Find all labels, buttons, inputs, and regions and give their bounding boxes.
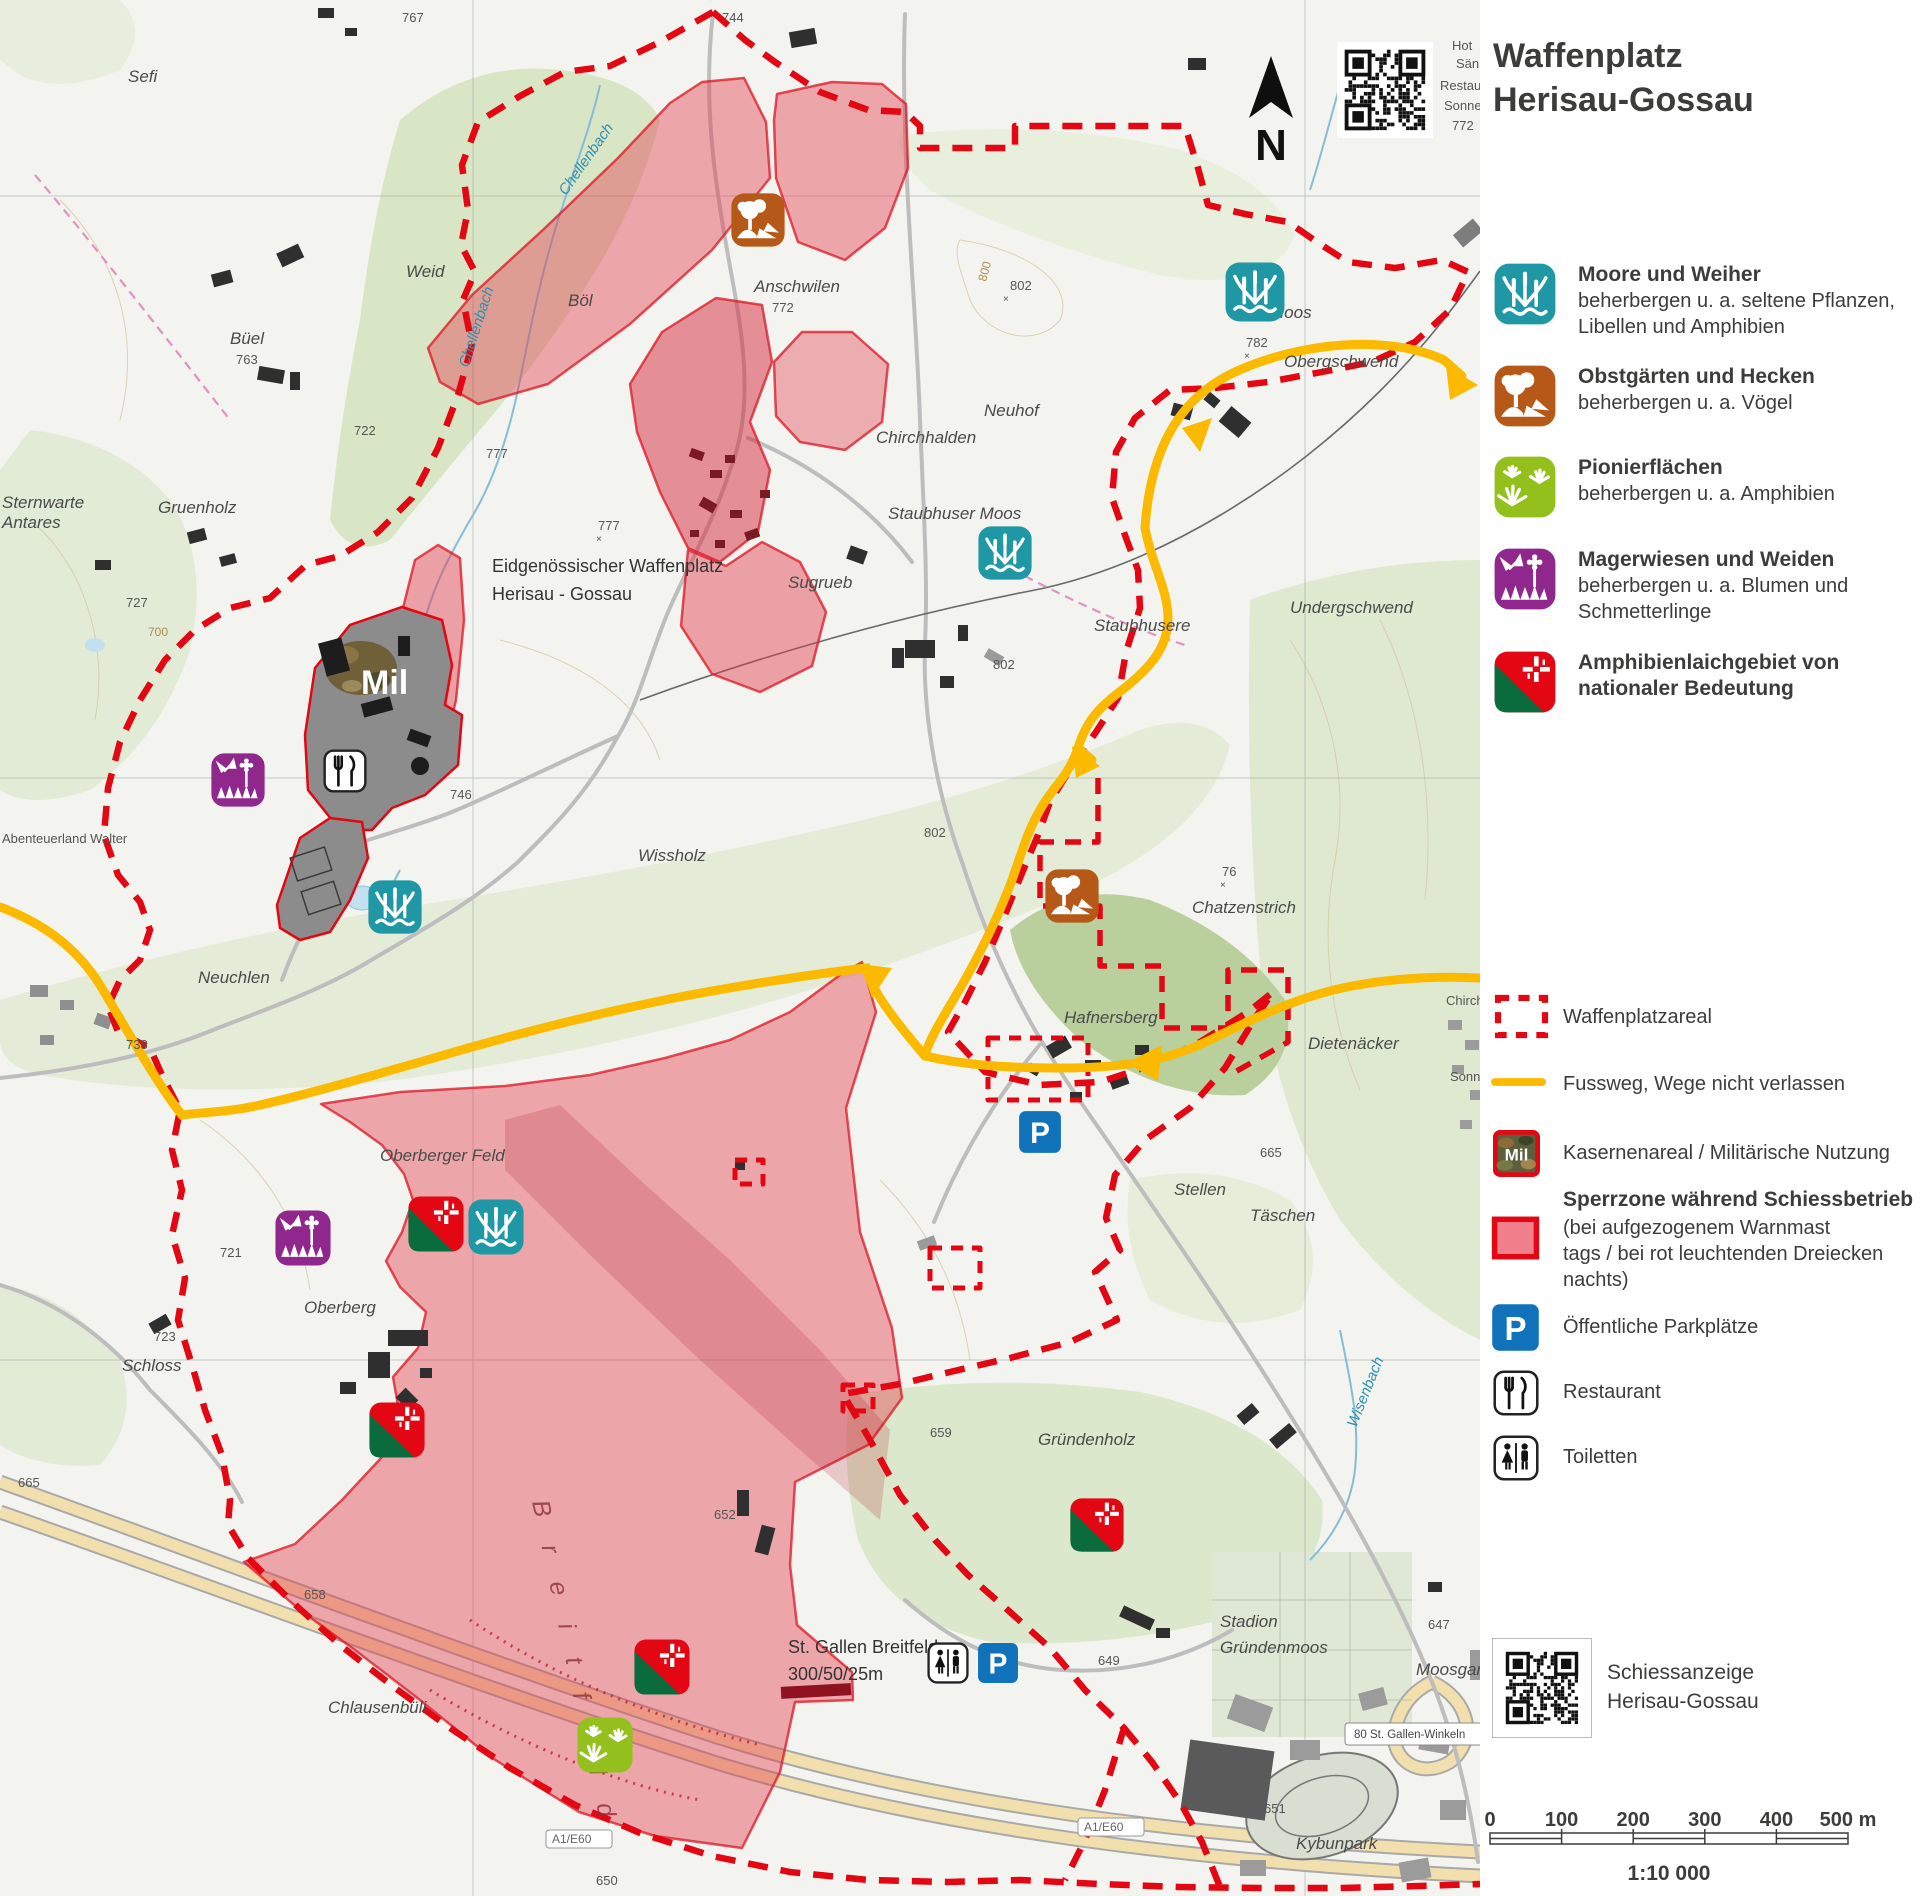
map-label: Abenteuerland Walter xyxy=(2,831,128,846)
map-label: Stellen xyxy=(1174,1180,1226,1199)
map-label: 802 xyxy=(1010,278,1032,293)
svg-text:400: 400 xyxy=(1760,1809,1793,1831)
map-label: Moosgar xyxy=(1416,1660,1480,1679)
map-title: WaffenplatzHerisau-Gossau xyxy=(1493,34,1754,122)
map-label: 665 xyxy=(1260,1145,1282,1160)
map-label: 300/50/25m xyxy=(788,1664,883,1684)
svg-text:200: 200 xyxy=(1617,1809,1650,1831)
map-label: 782 xyxy=(1246,335,1268,350)
map-label: Böl xyxy=(568,291,594,310)
map-label: Anschwilen xyxy=(753,277,840,296)
map-label: Gründenholz xyxy=(1038,1430,1136,1449)
parking-icon: P xyxy=(1019,1111,1061,1153)
map-label: St. Gallen Breitfeld xyxy=(788,1637,938,1657)
map-label: Neuhof xyxy=(984,401,1041,420)
legend-panel: WaffenplatzHerisau-Gossau Moore und Weih… xyxy=(1480,0,1920,1896)
amphibian-area-icon xyxy=(1493,650,1557,714)
map-label: 665 xyxy=(18,1475,40,1490)
map-label: 802 xyxy=(993,657,1015,672)
parking-icon: P xyxy=(978,1643,1018,1683)
pioneer-icon xyxy=(1493,455,1557,519)
map-label: Chirchhalden xyxy=(876,428,976,447)
map-label: Staubhusere xyxy=(1094,616,1190,635)
moor-icon xyxy=(468,1199,523,1254)
svg-text:P: P xyxy=(989,1649,1008,1681)
svg-text:Mil: Mil xyxy=(1505,1146,1529,1165)
boundary-icon xyxy=(1493,993,1550,1040)
map-label: Chlausenbüli xyxy=(328,1698,428,1717)
map-label: Sternwarte xyxy=(2,493,84,512)
map-label: 767 xyxy=(402,10,424,25)
map-label: 659 xyxy=(930,1425,952,1440)
map-label: 722 xyxy=(354,423,376,438)
waffenplatz-map-poster: Sefi767744WeidBüel763ChellenbachChellenb… xyxy=(0,0,1920,1896)
scale-bar: 0100200300400500 m1:10 000 xyxy=(1480,1798,1920,1896)
orchard-icon xyxy=(731,193,784,246)
map-label: 700 xyxy=(148,625,168,639)
map-label: A1/E60 xyxy=(1084,1820,1124,1834)
map-label: 723 xyxy=(154,1329,176,1344)
map-label: 652 xyxy=(714,1507,736,1522)
map-label: 649 xyxy=(1098,1653,1120,1668)
map-area: Sefi767744WeidBüel763ChellenbachChellenb… xyxy=(0,0,1480,1896)
map-label: 763 xyxy=(236,352,258,367)
moor-icon xyxy=(1493,262,1557,326)
map-label: Staubhuser Moos xyxy=(888,504,1022,523)
meadow-icon xyxy=(1493,547,1557,611)
map-label: Täschen xyxy=(1250,1206,1315,1225)
map-label: 647 xyxy=(1428,1617,1450,1632)
map-label: 651 xyxy=(1264,1801,1286,1816)
map-label: Sän xyxy=(1456,56,1479,71)
map-label: Stadion xyxy=(1220,1612,1278,1631)
map-label: 802 xyxy=(924,825,946,840)
map-label: Chirch xyxy=(1446,993,1480,1008)
map-label: Chatzenstrich xyxy=(1192,898,1296,917)
map-label: Dietenäcker xyxy=(1308,1034,1400,1053)
map-label: 772 xyxy=(1452,118,1474,133)
map-label: Obergschwend xyxy=(1284,352,1399,371)
qr-code-schiessanzeige xyxy=(1492,1638,1592,1738)
pioneer-icon xyxy=(577,1717,632,1772)
restaurant-icon xyxy=(1493,1370,1539,1416)
svg-text:100: 100 xyxy=(1545,1809,1578,1831)
map-label: Schloss xyxy=(122,1356,182,1375)
amph-icon xyxy=(408,1196,463,1251)
compass-label: N xyxy=(1255,121,1287,170)
map-label: Sonn xyxy=(1450,1069,1480,1084)
map-label: Hot xyxy=(1452,38,1473,53)
map-label: Undergschwend xyxy=(1290,598,1413,617)
svg-text:P: P xyxy=(1504,1311,1526,1348)
map-label: Kybunpark xyxy=(1296,1834,1379,1853)
map-label: Sefi xyxy=(128,67,159,86)
topographic-map: Sefi767744WeidBüel763ChellenbachChellenb… xyxy=(0,0,1480,1896)
map-label: Neuchlen xyxy=(198,968,270,987)
map-label: 738 xyxy=(126,1037,148,1052)
svg-text:1:10 000: 1:10 000 xyxy=(1628,1862,1711,1885)
map-label: × xyxy=(1003,294,1009,305)
map-label: 744 xyxy=(722,10,744,25)
map-label: Restauran xyxy=(1440,78,1480,93)
map-label: Oberberger Feld xyxy=(380,1146,505,1165)
footpath-icon xyxy=(1490,1076,1547,1088)
amph-icon xyxy=(634,1639,689,1694)
moor-icon xyxy=(368,880,421,933)
mil-icon: Mil xyxy=(1493,1130,1540,1177)
amph-icon xyxy=(1070,1498,1123,1551)
map-label: × xyxy=(1220,880,1226,891)
meadow-icon xyxy=(275,1210,330,1265)
map-label: Eidgenössischer Waffenplatz xyxy=(492,556,723,576)
map-label: Gründenmoos xyxy=(1220,1638,1328,1657)
map-label: 658 xyxy=(304,1587,326,1602)
map-label: Sugrueb xyxy=(788,573,852,592)
map-label: Oberberg xyxy=(304,1298,376,1317)
map-label: Mil xyxy=(361,664,408,702)
small-pond xyxy=(85,638,105,652)
restaurant-icon xyxy=(325,751,366,792)
svg-text:0: 0 xyxy=(1484,1809,1495,1831)
sperrzone-icon xyxy=(1491,1216,1540,1260)
map-label: Gruenholz xyxy=(158,498,237,517)
svg-text:300: 300 xyxy=(1688,1809,1721,1831)
map-label: × xyxy=(596,534,602,545)
map-label: 727 xyxy=(126,595,148,610)
map-label: Herisau - Gossau xyxy=(492,584,632,604)
map-label: 772 xyxy=(772,300,794,315)
map-label: A1/E60 xyxy=(552,1832,592,1846)
svg-text:P: P xyxy=(1030,1117,1050,1150)
moor-icon xyxy=(1226,263,1285,322)
map-label: × xyxy=(1244,351,1250,362)
map-label: 777 xyxy=(486,446,508,461)
toilets-icon xyxy=(1493,1435,1539,1481)
svg-text:500 m: 500 m xyxy=(1820,1809,1877,1831)
map-label: 721 xyxy=(220,1245,242,1260)
map-label: Wissholz xyxy=(638,846,706,865)
map-label: Antares xyxy=(1,513,61,532)
map-label: Weid xyxy=(406,262,445,281)
toilets-icon xyxy=(929,1644,968,1683)
map-label: Hafnersberg xyxy=(1064,1008,1158,1027)
map-label: 650 xyxy=(596,1873,618,1888)
map-label: 76 xyxy=(1222,864,1236,879)
map-label: Büel xyxy=(230,329,265,348)
map-label: Sonnenber xyxy=(1444,98,1480,113)
orchard-icon xyxy=(1493,364,1557,428)
parking-icon: P xyxy=(1491,1303,1540,1352)
moor-icon xyxy=(978,526,1031,579)
map-label: 80 St. Gallen-Winkeln xyxy=(1354,1729,1465,1741)
orchard-icon xyxy=(1045,869,1098,922)
map-label: 746 xyxy=(450,787,472,802)
map-label: 777 xyxy=(598,518,620,533)
meadow-icon xyxy=(211,753,264,806)
amph-icon xyxy=(369,1402,424,1457)
qr-code-map xyxy=(1337,42,1433,138)
